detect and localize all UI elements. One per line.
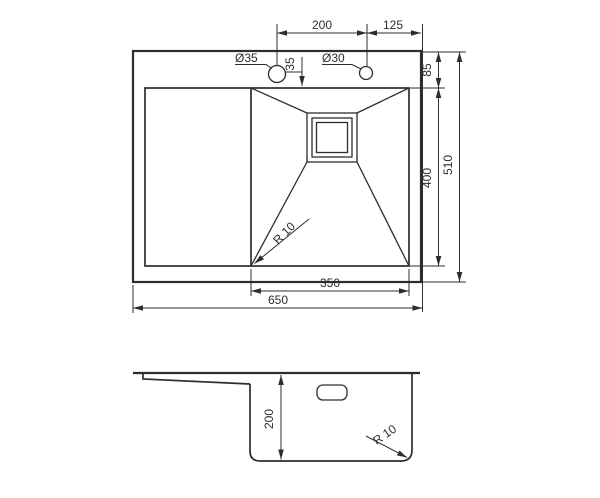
hole-large-callout: Ø35 <box>235 51 272 69</box>
dim-hole-to-edge-value: 125 <box>383 18 403 32</box>
dim-hole-to-right-edge: 125 <box>367 18 423 312</box>
section-view: 200 R 10 <box>133 373 420 461</box>
dim-bowl-depth: 400 <box>410 88 445 266</box>
dim-400-value: 400 <box>420 168 434 188</box>
slope-line-bottom-left <box>251 162 307 266</box>
dim-510-value: 510 <box>441 155 455 175</box>
dim-hole-to-bowl: 35 <box>283 57 302 86</box>
slope-line-top-left <box>251 88 307 113</box>
dim-top-edge-to-bowl: 85 <box>410 52 466 88</box>
slope-line-top-right <box>357 88 409 113</box>
hole-large-leader <box>235 65 272 69</box>
dim-85-value: 85 <box>420 63 434 77</box>
section-radius-callout: R 10 <box>366 422 407 458</box>
hole-small-callout: Ø30 <box>322 51 361 69</box>
dim-350-value: 350 <box>320 276 340 290</box>
corner-radius-callout: R 10 <box>255 219 310 264</box>
drain-square-middle <box>312 118 352 157</box>
sink-outer-outline <box>133 51 421 282</box>
drain-square-outer <box>307 113 357 162</box>
section-radius-label: R 10 <box>370 422 399 448</box>
dim-650-value: 650 <box>268 293 288 307</box>
dim-200-depth-value: 200 <box>262 409 276 429</box>
sink-technical-drawing: Ø35 Ø30 200 125 35 <box>0 0 600 498</box>
dim-section-bowl-depth: 200 <box>262 375 281 460</box>
hole-small-label: Ø30 <box>322 51 345 65</box>
dim-hole-spacing-value: 200 <box>312 18 332 32</box>
slope-line-bottom-right <box>357 162 409 266</box>
dim-hole-to-bowl-value: 35 <box>283 57 297 71</box>
top-view: Ø35 Ø30 200 125 35 <box>133 18 466 313</box>
drawing-canvas: Ø35 Ø30 200 125 35 <box>0 0 600 498</box>
hole-small-leader <box>322 65 361 70</box>
section-drainboard-profile <box>143 374 250 385</box>
faucet-hole-small <box>360 67 373 80</box>
overflow-slot <box>317 385 347 400</box>
hole-large-label: Ø35 <box>235 51 258 65</box>
drain-flange <box>307 113 357 162</box>
drain-square-inner <box>317 123 348 153</box>
dim-overall-depth: 510 <box>421 52 466 282</box>
dim-overall-width: 650 <box>133 285 423 313</box>
